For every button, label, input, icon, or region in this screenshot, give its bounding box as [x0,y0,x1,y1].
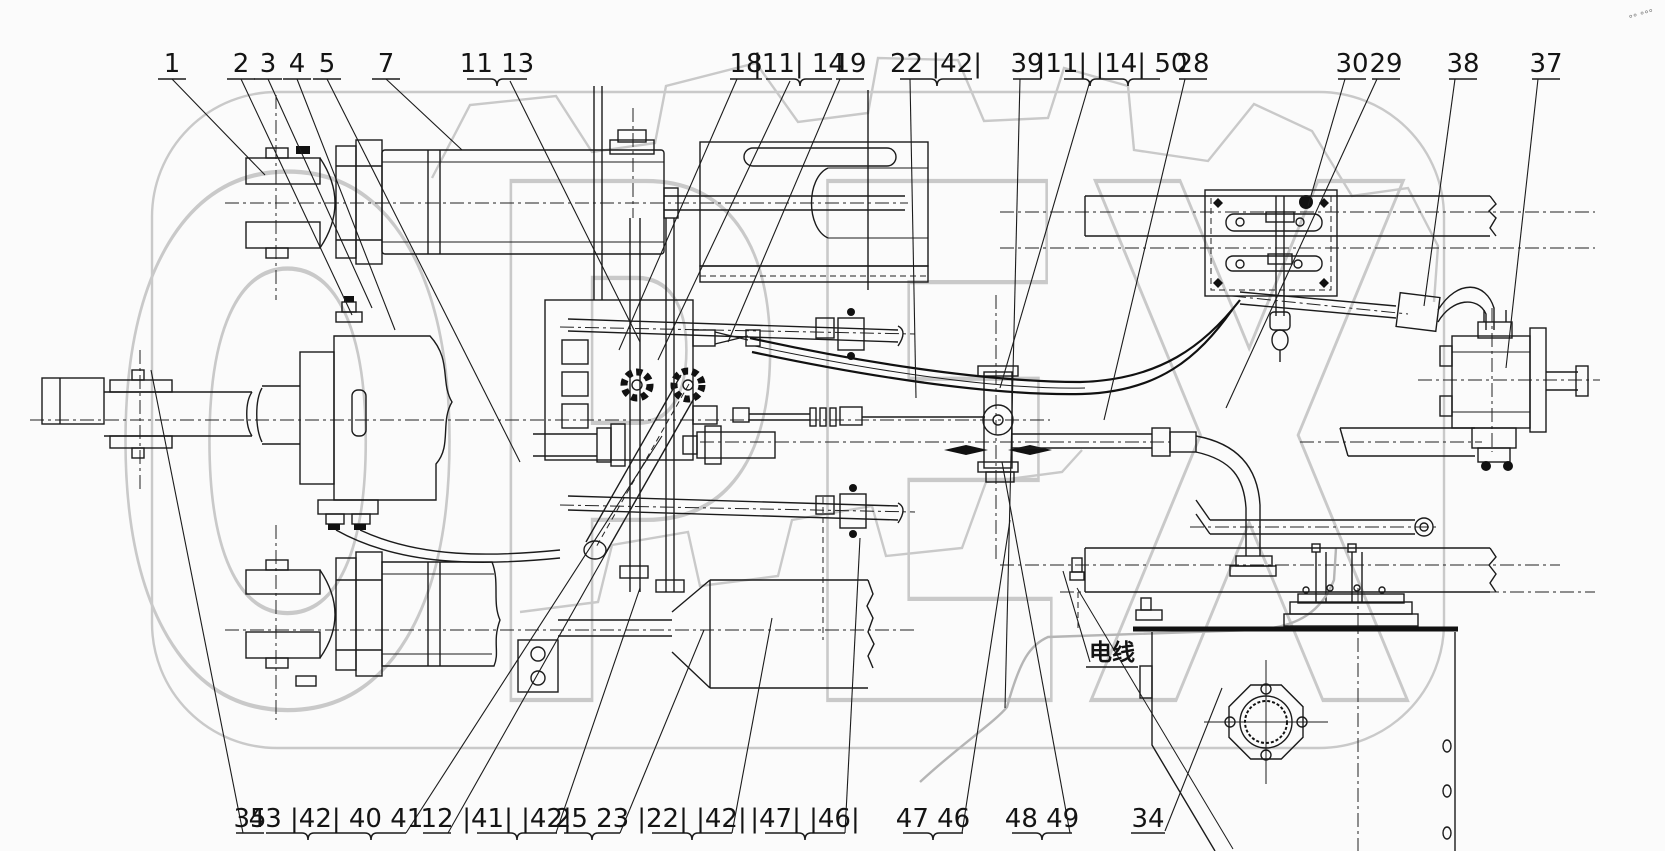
tank-hole [1443,740,1451,752]
part-label: |11| |14| 50 [1037,49,1188,79]
part-label: 19 [833,49,866,79]
part-label: 30 [1335,49,1368,79]
part-label: 1 [164,49,181,79]
tank-hole [1443,785,1451,797]
part-label: 12 [420,804,453,834]
pump-body [1452,336,1530,428]
part-label: 28 [1176,49,1209,79]
corner-marks: °° °°° [1628,8,1655,25]
gear-pump [1440,310,1588,471]
part-label: 38 [1446,49,1479,79]
part-label: 5 [319,49,336,79]
pump-shaft-end [1576,366,1588,396]
part-label: 22 |42| [890,49,982,79]
tank-hole [1443,827,1451,839]
wire-label: 电线 [1089,639,1135,666]
part-label: 29 [1369,49,1402,79]
part-label: |22| |42| [637,804,746,834]
part-label: 37 [1529,49,1562,79]
part-label: 4 [289,49,306,79]
part-label: |11| 14 [753,49,845,79]
part-label: 2 [233,49,250,79]
part-label: 34 [1131,804,1164,834]
part-label: 7 [378,49,395,79]
assembly-drawing: OPEX [0,0,1665,851]
part-label: 11 13 [460,49,534,79]
part-label: 3 [260,49,277,79]
drawing-sheet: OPEX [0,0,1665,851]
part-label: 43 |42| 40 41 [249,804,424,834]
watermark-text: OPEX [104,39,1416,851]
part-label: |47| |46| [750,804,859,834]
part-label: 48 49 [1005,804,1079,834]
part-label: 47 46 [896,804,970,834]
part-label: 25 23 [555,804,629,834]
